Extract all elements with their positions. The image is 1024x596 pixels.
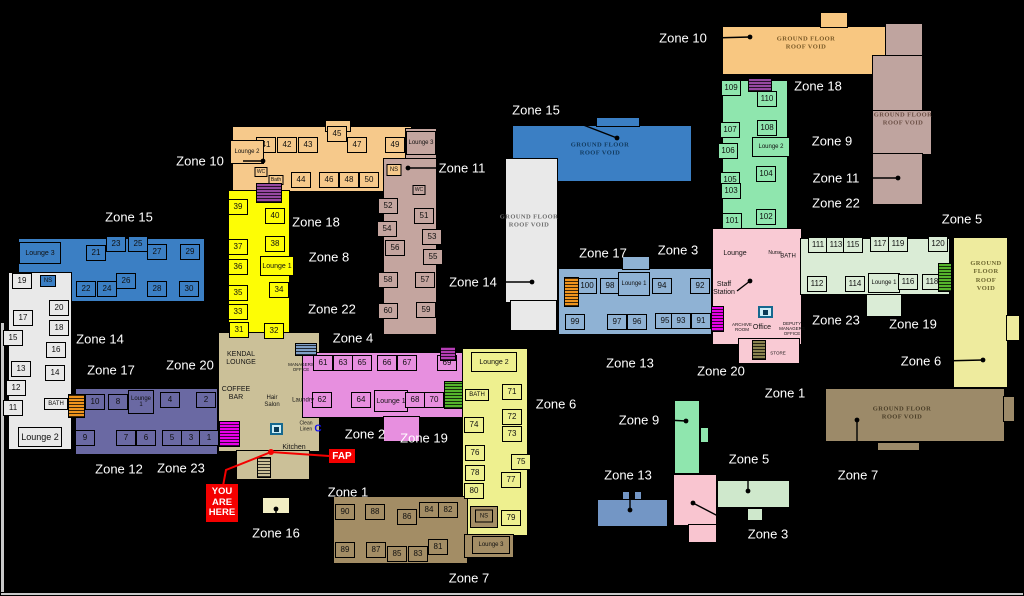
roof-void-label: GROUND FLOOR ROOF VOID [874,112,932,129]
zone-label: Zone 3 [658,243,698,258]
room: 84 [419,502,439,518]
room: 109 [721,80,741,96]
room: 1 [199,430,219,446]
zone-label: Zone 1 [328,485,368,500]
room: 98 [600,278,620,294]
room: 77 [501,472,521,488]
room: 64 [351,392,371,408]
room: 46 [319,172,339,188]
room-label: Laundry [292,398,314,405]
room: 70 [424,392,444,408]
room: 110 [757,91,777,107]
zone-label: Zone 4 [333,331,373,346]
zone-block [673,474,717,526]
zone-label: Zone 6 [901,354,941,369]
zone-block [596,117,640,127]
room: 61 [313,355,333,371]
room: 66 [377,355,397,371]
room: 17 [13,310,33,326]
zone-label: Zone 10 [659,31,707,46]
room: 44 [291,172,311,188]
evacuation-floor-plan: 41424345474944464850Lounge 2WCBathNSLoun… [0,0,1024,596]
zone-block [1003,396,1015,422]
room: 80 [464,483,484,499]
room: 36 [228,259,248,275]
room: 58 [378,272,398,288]
stair-icon [68,394,85,418]
room: 86 [397,509,417,525]
room: 13 [11,361,31,377]
zone-label: Zone 15 [105,210,153,225]
room: 106 [718,143,738,159]
room: NS [387,164,402,176]
zone-label: Zone 18 [794,79,842,94]
room: Lounge 2 [471,352,517,372]
room: 29 [180,244,200,260]
zone-block [747,508,763,521]
room: 81 [428,539,448,555]
stair-icon [444,381,463,409]
room-label: C [314,423,321,435]
room-label: ARCHIVE ROOM [732,322,752,332]
room: 16 [46,342,66,358]
room: 39 [228,199,248,215]
room: 117 [870,236,890,252]
room: 65 [352,355,372,371]
zone-label: Zone 7 [838,468,878,483]
zone-block [262,497,290,514]
room: WC [413,185,426,195]
room: 18 [49,320,69,336]
you-are-here-badge: YOU ARE HERE [206,484,238,522]
room: 116 [898,274,918,290]
room: 96 [627,314,647,330]
zone-label: Zone 10 [176,154,224,169]
room: 102 [756,209,776,225]
room-label: STORE [770,350,785,355]
room: 75 [511,454,531,470]
room-label: KENDAL LOUNGE [226,351,256,367]
room: 71 [502,384,522,400]
zone-label: Zone 16 [252,526,300,541]
room: 33 [228,304,248,320]
stair-icon [256,183,282,203]
room: 19 [12,273,32,289]
roof-void-label: GROUND FLOOR ROOF VOID [873,406,931,423]
zone-label: Zone 22 [812,196,860,211]
room: 3 [181,430,201,446]
stair-icon [752,340,766,360]
zone-block [700,427,709,443]
zone-label: Zone 19 [400,431,448,446]
lift-icon [270,423,283,435]
zone-label: Zone 11 [813,171,860,186]
zone-label: Zone 13 [606,356,654,371]
room: 15 [3,330,23,346]
room: 28 [147,281,167,297]
room: 52 [378,198,398,214]
zone-label: Zone 20 [697,364,745,379]
room: 104 [756,166,776,182]
stair-icon [440,346,456,361]
room-label: Kitchen [282,444,305,452]
roof-void-label: GROUND FLOOR ROOF VOID [967,260,1005,294]
room: 14 [45,365,65,381]
zone-label: Zone 23 [812,313,860,328]
zone-label: Zone 19 [889,317,937,332]
room: 97 [607,314,627,330]
room: 94 [652,278,672,294]
room: 38 [265,236,285,252]
room: 25 [128,236,148,252]
zone-label: Zone 22 [308,302,356,317]
room: 111 [808,237,828,253]
stair-icon [748,78,772,92]
room: Lounge 1 [868,273,900,293]
room: 22 [76,281,96,297]
room: 42 [277,137,297,153]
room: 67 [397,355,417,371]
stair-icon [219,421,240,447]
room-label: Lounge [723,250,746,258]
room: 83 [408,546,428,562]
room: Lounge 1 [128,390,154,414]
zone-block [872,153,923,205]
room: 119 [888,236,908,252]
room: NS [40,275,56,287]
room: 63 [333,355,353,371]
zone-block [622,491,630,500]
room: Lounge 3 [406,131,436,155]
room: 74 [464,417,484,433]
room: 8 [108,394,128,410]
room-label: MANAGERS OFFICE [288,362,314,372]
zone-block [820,12,848,28]
room: 20 [49,300,69,316]
stair-icon [711,306,724,332]
room: 99 [565,314,585,330]
room: 32 [264,323,284,339]
room: 78 [465,465,485,481]
room: 43 [298,137,318,153]
zone-block [877,442,920,451]
room: 120 [928,236,948,252]
room-label: DEPUTY MANAGERS OFFICE [779,321,805,337]
roof-void-label: GROUND FLOOR ROOF VOID [571,142,629,159]
zone-block [717,480,790,508]
room: 31 [229,322,249,338]
room: 54 [377,221,397,237]
fap-badge: FAP [329,449,355,463]
zone-label: Zone 14 [449,275,497,290]
room: 62 [312,392,332,408]
zone-label: Zone 14 [76,332,124,347]
zone-block [510,300,557,331]
zone-block [866,294,902,317]
room: 48 [339,172,359,188]
room: 101 [722,213,742,229]
room: 50 [359,172,379,188]
room: 51 [414,208,434,224]
room: 76 [465,445,485,461]
room: 112 [807,276,827,292]
zone-label: Zone 23 [157,461,205,476]
zone-label: Zone 5 [942,212,982,227]
room: Lounge 3 [472,536,510,554]
zone-label: Zone 7 [449,571,489,586]
room: 12 [6,380,26,396]
room: 68 [405,392,425,408]
room: 27 [147,244,167,260]
room: 10 [85,394,105,410]
zone-block [872,55,923,112]
room: 92 [690,278,710,294]
room: 107 [720,122,740,138]
room: NS [475,510,493,523]
room: 72 [502,409,522,425]
room: Lounge 2 [230,140,264,164]
zone-label: Zone 3 [748,527,788,542]
zone-label: Zone 12 [95,462,143,477]
room: 100 [577,278,597,294]
room: 103 [721,183,741,199]
room: 60 [378,303,398,319]
room: 47 [347,137,367,153]
room: 55 [423,249,443,265]
room: 6 [136,430,156,446]
room-label: BATH [780,254,796,261]
room: Lounge 3 [19,242,61,264]
room: 57 [415,272,435,288]
zone-label: Zone 11 [439,161,486,176]
zone-block [0,322,5,596]
zone-label: Zone 6 [536,397,576,412]
zone-label: Zone 9 [619,413,659,428]
zone-label: Zone 9 [812,134,852,149]
room-label: Hair Salon [264,395,279,409]
room: 37 [228,239,248,255]
room: 85 [387,546,407,562]
stair-icon [564,277,579,307]
room: 59 [416,302,436,318]
room: 2 [196,392,216,408]
zone-block [1006,315,1020,341]
room: 73 [502,426,522,442]
room: 87 [366,542,386,558]
roof-void-label: GROUND FLOOR ROOF VOID [777,36,835,53]
zone-block [674,400,700,474]
zone-label: Zone 1 [765,386,805,401]
room: 23 [106,236,126,252]
zone-label: Zone 18 [292,215,340,230]
room: 21 [86,245,106,261]
zone-block [885,23,923,57]
room: 5 [162,430,182,446]
roof-void-label: GROUND FLOOR ROOF VOID [500,214,558,231]
room-label: Clean Linen [299,421,312,433]
room: 30 [179,281,199,297]
room: 24 [97,281,117,297]
zone-block [505,158,558,303]
room: 89 [335,542,355,558]
zone-block [236,450,310,480]
room: 91 [691,313,711,329]
room: Lounge 2 [18,427,62,447]
room: 40 [265,208,285,224]
zone-label: Zone 20 [166,358,214,373]
zone-label: Zone 5 [729,452,769,467]
room-label: Staff Station [713,281,735,297]
room: 90 [335,504,355,520]
zone-block [738,338,800,364]
room: 108 [757,120,777,136]
zone-block [597,499,668,527]
room: 79 [501,510,521,526]
room: 4 [160,392,180,408]
room-label: Office [753,324,771,332]
lift-icon [758,306,773,318]
room: Lounge 2 [752,137,790,157]
room: 9 [75,430,95,446]
zone-label: Zone 17 [87,363,135,378]
room: Lounge 1 [260,256,294,276]
room: 114 [845,276,865,292]
room: 115 [843,237,863,253]
room: Lounge 1 [374,390,408,412]
stair-icon [295,343,317,356]
room: 11 [3,400,23,416]
room: 56 [385,240,405,256]
room: 34 [269,282,289,298]
zone-block [634,491,642,500]
room: 82 [438,502,458,518]
room: 93 [671,313,691,329]
zone-block [0,592,1024,596]
room: 49 [385,137,405,153]
room: Lounge 1 [618,272,650,296]
room: BATH [465,389,489,401]
zone-label: Zone 8 [309,250,349,265]
room: WC [255,167,268,177]
stair-icon [938,263,952,292]
room-label: COFFEE BAR [222,386,250,402]
zone-label: Zone 2 [345,427,385,442]
zone-label: Zone 15 [512,103,560,118]
room: 35 [228,285,248,301]
zone-block [688,524,717,543]
room: 88 [365,504,385,520]
zone-label: Zone 13 [604,468,652,483]
zone-label: Zone 17 [579,246,627,261]
stair-icon [257,457,271,478]
room: 53 [422,229,442,245]
room: 45 [327,126,347,142]
room: 26 [116,273,136,289]
room: 7 [116,430,136,446]
room: BATH [44,398,68,410]
